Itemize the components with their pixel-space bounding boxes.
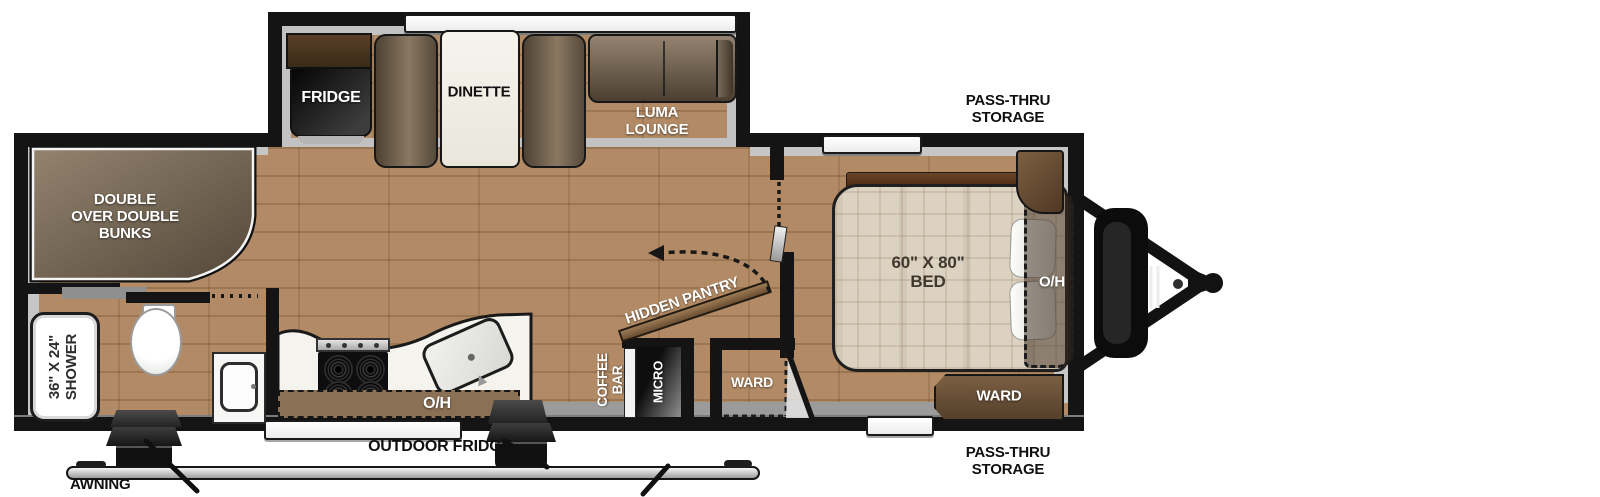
hitch-coupler-ball bbox=[1203, 273, 1223, 293]
luma-lounge-sofa bbox=[588, 34, 737, 103]
stove-knob-strip bbox=[316, 338, 390, 352]
coffee-bar-label: COFFEE BAR bbox=[595, 353, 625, 407]
stove-knob bbox=[374, 343, 379, 348]
sofa-armrest bbox=[716, 40, 733, 97]
wall-top-left bbox=[14, 133, 282, 147]
micro-label: MICRO bbox=[652, 361, 667, 403]
awning-rail bbox=[66, 466, 760, 480]
awning-rail-cap bbox=[724, 460, 752, 468]
hitch-jack bbox=[1173, 279, 1183, 289]
wall-bedroom-partition bbox=[780, 252, 794, 358]
fridge-label: FRIDGE bbox=[301, 89, 360, 107]
wall-slide-right bbox=[736, 12, 750, 147]
pass-thru-storage-bottom-label: PASS-THRU STORAGE bbox=[966, 445, 1051, 479]
micro-counter-sliver bbox=[624, 348, 636, 418]
bedroom-bottom-window bbox=[866, 416, 934, 436]
bath-faucet bbox=[251, 384, 256, 389]
propane-tank bbox=[1094, 208, 1148, 358]
bedroom-ward-label: WARD bbox=[976, 389, 1021, 406]
wall-slide-left bbox=[268, 12, 282, 147]
awning-rail-cap bbox=[76, 461, 106, 468]
toilet bbox=[130, 308, 182, 376]
stove-burner bbox=[324, 355, 353, 384]
step-upper bbox=[106, 427, 182, 446]
wall-entry-ward-left bbox=[710, 350, 722, 418]
fridge-base bbox=[298, 136, 364, 144]
hitch-frame-lower bbox=[1080, 287, 1198, 366]
bed-label: 60" X 80" BED bbox=[892, 253, 965, 291]
pass-thru-storage-top-label: PASS-THRU STORAGE bbox=[966, 93, 1051, 127]
entry-door-mat bbox=[488, 400, 548, 424]
wall-bedroom-stub bbox=[770, 147, 784, 180]
bedroom-corner-cabinet bbox=[1016, 150, 1064, 214]
sofa-cushion-divider bbox=[663, 41, 665, 96]
wall-bunk-divider-b bbox=[126, 292, 210, 303]
bunks-label: DOUBLE OVER DOUBLE BUNKS bbox=[71, 192, 179, 242]
fridge-cabinet bbox=[286, 33, 372, 69]
kitchen-bottom-window bbox=[264, 420, 462, 440]
hitch-frame-upper bbox=[1080, 200, 1198, 279]
bed-overhead-label: O/H bbox=[1039, 275, 1065, 292]
dinette-bench-right bbox=[522, 34, 586, 168]
dinette-label: DINETTE bbox=[448, 85, 511, 102]
bedroom-top-window bbox=[822, 135, 922, 154]
bath-vanity bbox=[212, 352, 266, 424]
stove-burner bbox=[356, 355, 385, 384]
shower-label: 36" X 24" SHOWER bbox=[47, 334, 81, 400]
hitch-coupler bbox=[1188, 268, 1208, 296]
liner-top-left bbox=[28, 147, 268, 155]
outdoor-fridge-label: OUTDOOR FRIDGE bbox=[368, 438, 512, 456]
kitchen-overhead-cabinet bbox=[278, 390, 520, 418]
stove-knob bbox=[358, 343, 363, 348]
wall-left bbox=[14, 133, 28, 429]
stove-knob bbox=[342, 343, 347, 348]
floorplan-canvas: FRIDGE DINETTE LUMA LOUNGE DOUBLE OVER D… bbox=[0, 0, 1600, 497]
propane-tank-highlight bbox=[1103, 222, 1131, 344]
stove-knob bbox=[326, 343, 331, 348]
kitchen-overhead-label: O/H bbox=[423, 395, 451, 413]
entry-door-mat bbox=[110, 410, 182, 427]
sink-drain bbox=[467, 353, 476, 362]
dinette-bench-left bbox=[374, 34, 438, 168]
entry-ward-label: WARD bbox=[731, 375, 773, 391]
luma-lounge-label: LUMA LOUNGE bbox=[626, 105, 689, 139]
awning-label: AWNING bbox=[70, 477, 130, 494]
wall-pantry-right bbox=[680, 344, 694, 418]
